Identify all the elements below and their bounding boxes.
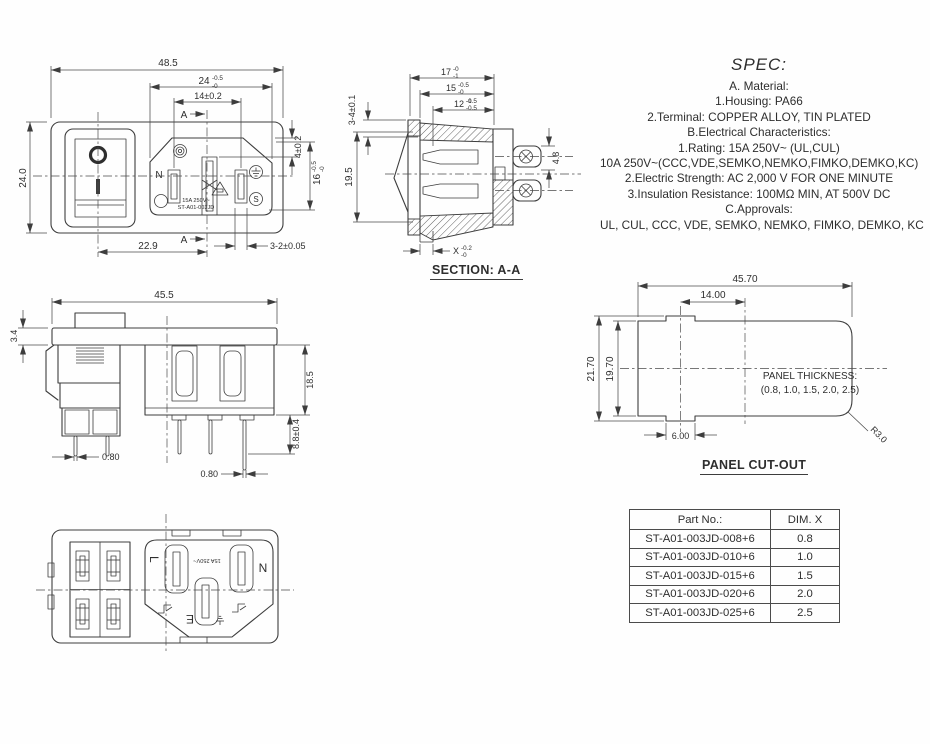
drawing-sheet: N S 15A 250V~ ST-A01-003JD [0,0,930,744]
dim-slot: 3-2±0.05 [270,241,305,251]
neutral-terminal-label: N [155,170,162,181]
section-marker-bottom: A [181,235,188,246]
dim-body-depth: 18.5 [305,371,315,389]
part-no-cell: ST-A01-003JD-008+6 [630,530,771,549]
rocker-switch [65,129,135,227]
spec-line: B.Electrical Characteristics: [600,125,918,140]
cutout-dimensions: 45.70 14.00 21.70 19.70 6.00 R3.0 [586,274,889,445]
rear-body: L N E 15A 250V~ [48,530,278,643]
rear-rating-marking: 15A 250V~ [193,557,221,563]
inlet-socket: N S 15A 250V~ ST-A01-003JD [150,138,272,215]
dim-flange-width: 45.5 [154,290,174,301]
table-row: ST-A01-003JD-008+6 0.8 [630,530,840,549]
dim-socket-width: 24 -0.5 -0 [198,75,223,90]
dim-x-cell: 0.8 [771,530,840,549]
dim-pin-length: 8.8±0.4 [291,419,301,449]
table-row: ST-A01-003JD-010+6 1.0 [630,548,840,567]
col-header-part-no: Part No.: [630,510,771,530]
svg-text:-0.5: -0.5 [466,105,477,112]
spec-line: A. Material: [600,79,918,94]
front-view: N S 15A 250V~ ST-A01-003JD [18,38,333,273]
svg-text:-0: -0 [458,89,464,96]
spec-line: UL, CUL, CCC, VDE, SEMKO, NEMKO, FIMKO, … [600,218,918,233]
front-centerlines [33,110,293,257]
fuse-symbol-right [232,604,246,612]
dim-x-cell: 2.0 [771,585,840,604]
spec-line: 2.Electric Strength: AC 2,000 V FOR ONE … [600,171,918,186]
spec-line: C.Approvals: [600,202,918,217]
part-marking: ST-A01-003JD [178,205,215,211]
dim-pin-spacing: 14±0.2 [194,91,221,101]
svg-text:-0: -0 [453,66,459,73]
dim-pin2-thk: 0.80 [200,469,218,479]
svg-text:-0: -0 [212,83,218,90]
svg-text:16: 16 [312,173,323,185]
front-dimensions: 48.5 24 -0.5 -0 14±0.2 A A 24.0 [18,58,326,252]
part-no-cell: ST-A01-003JD-010+6 [630,548,771,567]
rating-marking: 15A 250V~ [182,198,210,204]
cutout-view-label: PANEL CUT-OUT [700,458,808,475]
dim-notch-width: 6.00 [672,431,690,441]
dim-48: 4.8 [551,152,561,165]
spec-line: 2.Terminal: COPPER ALLOY, TIN PLATED [600,110,918,125]
dim-overall-width: 48.5 [158,58,178,69]
part-no-cell: ST-A01-003JD-015+6 [630,567,771,586]
earth-mark-icon [250,166,263,179]
dim-4: 4±0.2 [293,136,303,158]
dim-229: 22.9 [138,241,158,252]
side-dimensions: 45.5 3.4 18.5 8.8±0.4 0.80 0.80 [9,290,315,479]
svg-text:-0.5: -0.5 [458,82,469,89]
table-row: ST-A01-003JD-025+6 2.5 [630,604,840,623]
table-row: ST-A01-003JD-020+6 2.0 [630,585,840,604]
spec-line: 1.Rating: 15A 250V~ (UL,CUL) [600,141,918,156]
semko-mark-icon: S [250,193,263,206]
spec-line: 10A 250V~(CCC,VDE,SEMKO,NEMKO,FIMKO,DEMK… [600,156,918,171]
rear-view: L N E 15A 250V~ [30,508,300,658]
dim-x: X -0.2 -0 [453,245,472,259]
svg-text:X: X [453,246,459,256]
svg-text:-0: -0 [319,166,326,172]
spec-line: 3.Insulation Resistance: 100MΩ MIN, AT 5… [600,187,918,202]
svg-text:-0.5: -0.5 [311,161,318,172]
ccc-mark-icon [174,145,187,158]
fuse-symbol-left [158,605,172,613]
dim-x-cell: 2.5 [771,604,840,623]
spring-hatch [76,348,104,363]
spec-line: 1.Housing: PA66 [600,94,918,109]
svg-text:-1: -1 [466,98,472,105]
dim-flange-thk: 3.4 [9,330,19,343]
rear-line-label: L [147,556,161,563]
svg-text:24: 24 [198,76,210,87]
svg-text:-0.2: -0.2 [461,245,472,252]
dim-pin1-thk: 0.80 [102,452,120,462]
rear-neutral-label: N [259,561,268,575]
dim-overall-height: 24.0 [18,168,29,188]
parts-table: Part No.: DIM. X ST-A01-003JD-008+6 0.8 … [629,509,840,623]
table-row: ST-A01-003JD-015+6 1.5 [630,567,840,586]
rear-earth-label: E [186,612,194,626]
svg-text:-0.5: -0.5 [212,75,223,82]
spec-block: SPEC: A. Material: 1.Housing: PA66 2.Ter… [600,55,918,233]
dim-x-cell: 1.5 [771,567,840,586]
section-marker-top: A [181,110,188,121]
dim-195: 19.5 [344,167,355,187]
spec-title: SPEC: [600,55,918,75]
vde-mark-icon [155,195,168,208]
section-aa-view: 17 -0 -1 15 -0.5 -0 12 -0.5 -1 [343,50,593,265]
col-header-dim-x: DIM. X [771,510,840,530]
panel-cutout-view: 45.70 14.00 21.70 19.70 6.00 R3.0 PANEL … [582,272,912,457]
svg-text:12: 12 [454,99,464,109]
side-body [46,313,277,470]
dim-cutout-height: 21.70 [586,356,597,381]
part-no-cell: ST-A01-003JD-025+6 [630,604,771,623]
cutout-centerlines [620,298,887,432]
dim-cutout-inner-height: 19.70 [605,356,616,381]
dim-16: 16 -0.5 -0 [311,161,326,185]
dim-corner-radius: R3.0 [869,424,890,445]
section-view-label: SECTION: A-A [430,263,523,280]
section-body [394,120,541,242]
dim-34: 3-4±0.1 [347,95,357,125]
svg-text:17: 17 [441,67,451,77]
panel-thickness-note-2: (0.8, 1.0, 1.5, 2.0, 2.5) [761,385,859,396]
side-view: 45.5 3.4 18.5 8.8±0.4 0.80 0.80 [12,288,327,493]
earth-symbol [216,616,224,625]
dim-cutout-inner-width: 14.00 [700,290,725,301]
svg-text:15: 15 [446,83,456,93]
dim-cutout-width: 45.70 [732,274,757,285]
svg-text:S: S [253,195,258,204]
panel-thickness-note-1: PANEL THICKNESS: [763,371,857,382]
part-no-cell: ST-A01-003JD-020+6 [630,585,771,604]
table-header-row: Part No.: DIM. X [630,510,840,530]
svg-text:-1: -1 [453,73,459,80]
svg-text:-0: -0 [461,252,467,259]
dim-x-cell: 1.0 [771,548,840,567]
